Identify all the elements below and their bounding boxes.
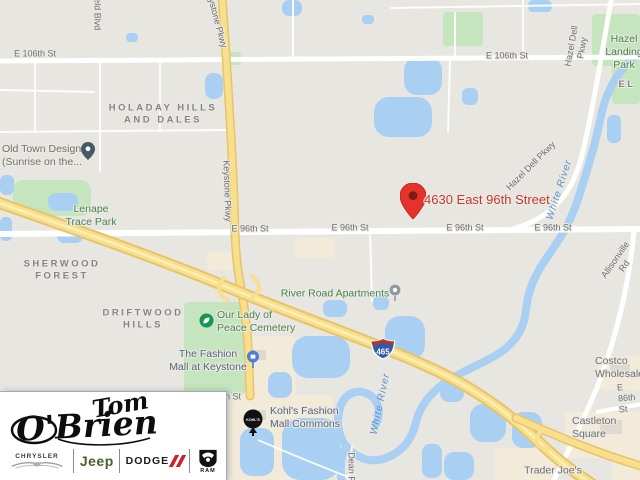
brand-logos-row: CHRYSLER Jeep DODGE <box>6 446 221 476</box>
brand-divider <box>189 449 190 473</box>
brand-divider <box>119 449 120 473</box>
map-canvas[interactable]: E 106th StE 106th StE 96th StE 96th StE … <box>0 0 640 480</box>
chrysler-wings-icon <box>8 460 66 469</box>
cemetery-leaf-icon[interactable] <box>199 313 214 328</box>
brand-jeep: Jeep <box>80 453 114 469</box>
signature-flourish <box>0 392 226 448</box>
destination-pin[interactable] <box>400 183 426 219</box>
brand-dodge: DODGE <box>126 455 184 467</box>
svg-text:KOHL'S: KOHL'S <box>246 418 260 422</box>
dealer-signature: Tom O'Brien <box>0 392 226 444</box>
dodge-wordmark: DODGE <box>126 455 170 467</box>
dealer-logo-card: Tom O'Brien CHRYSLER Jeep DODGE <box>0 391 227 480</box>
chrysler-wordmark: CHRYSLER <box>15 453 59 460</box>
old-town-design-pin[interactable] <box>81 142 95 160</box>
ram-badge-icon <box>197 449 219 468</box>
fashion-mall-pin[interactable] <box>246 350 260 368</box>
ram-wordmark: RAM <box>200 468 216 474</box>
river-road-apartments-pin[interactable] <box>389 284 401 301</box>
interstate-465-shield-icon: 465 <box>370 338 396 360</box>
brand-ram: RAM <box>195 449 221 474</box>
kohls-pin[interactable]: KOHL'S <box>242 409 264 436</box>
svg-text:465: 465 <box>376 348 390 357</box>
brand-divider <box>73 449 74 473</box>
brand-chrysler: CHRYSLER <box>6 453 68 469</box>
destination-address-label: 4630 East 96th Street <box>424 192 550 207</box>
